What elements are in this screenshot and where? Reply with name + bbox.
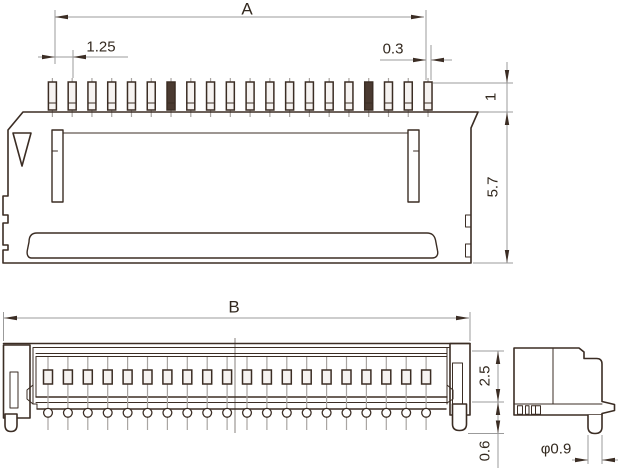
arrowhead [496, 389, 500, 402]
dim-label-overall-a: A [241, 1, 252, 18]
arrowhead [496, 402, 500, 415]
arrowhead [411, 15, 424, 19]
arrowhead [413, 58, 426, 62]
arrowhead [575, 458, 588, 462]
side-view-body-outline [514, 348, 615, 415]
arrowhead [42, 55, 55, 59]
actuator-band [27, 233, 438, 258]
front-pins [44, 357, 431, 430]
side-view-pin [588, 415, 602, 434]
dim-label-pin-diameter: φ0.9 [541, 442, 572, 457]
dim-label-body-height: 2.5 [478, 366, 493, 387]
dim-label-body-depth: 5.7 [486, 177, 501, 198]
front-view [4, 338, 471, 433]
arrowhead [496, 421, 500, 434]
arrowhead [505, 250, 509, 263]
arrowhead [496, 351, 500, 364]
dim-label-overall-b: B [228, 299, 239, 316]
side-view [514, 348, 615, 434]
arrowhead [55, 15, 68, 19]
dim-label-standoff: 0.6 [478, 441, 493, 462]
hatch-mark [518, 406, 523, 414]
top-view [3, 78, 478, 263]
right-solder-foot [453, 404, 467, 431]
arrowhead [431, 58, 444, 62]
arrowhead [505, 112, 509, 125]
left-slot [52, 130, 63, 202]
drawing-canvas [0, 0, 621, 473]
left-end-bracket [4, 345, 31, 418]
arrowhead [505, 70, 509, 83]
arrowhead [456, 316, 469, 320]
hatch-mark [526, 406, 530, 414]
right-slot [408, 130, 419, 202]
arrowhead [602, 458, 615, 462]
technical-drawing-page: A 1.25 0.3 1 5.7 B 2.5 0.6 φ0.9 [0, 0, 621, 473]
top-pins [48, 78, 432, 117]
left-solder-foot [5, 414, 17, 432]
side-notch [466, 215, 472, 227]
side-notch [466, 244, 472, 257]
arrowhead [73, 55, 86, 59]
dim-label-pin-height: 1 [484, 93, 499, 101]
arrowhead [4, 316, 17, 320]
pin1-indicator-triangle [13, 133, 31, 166]
dim-label-pitch: 1.25 [86, 40, 115, 55]
dim-label-pin-width: 0.3 [383, 42, 404, 57]
